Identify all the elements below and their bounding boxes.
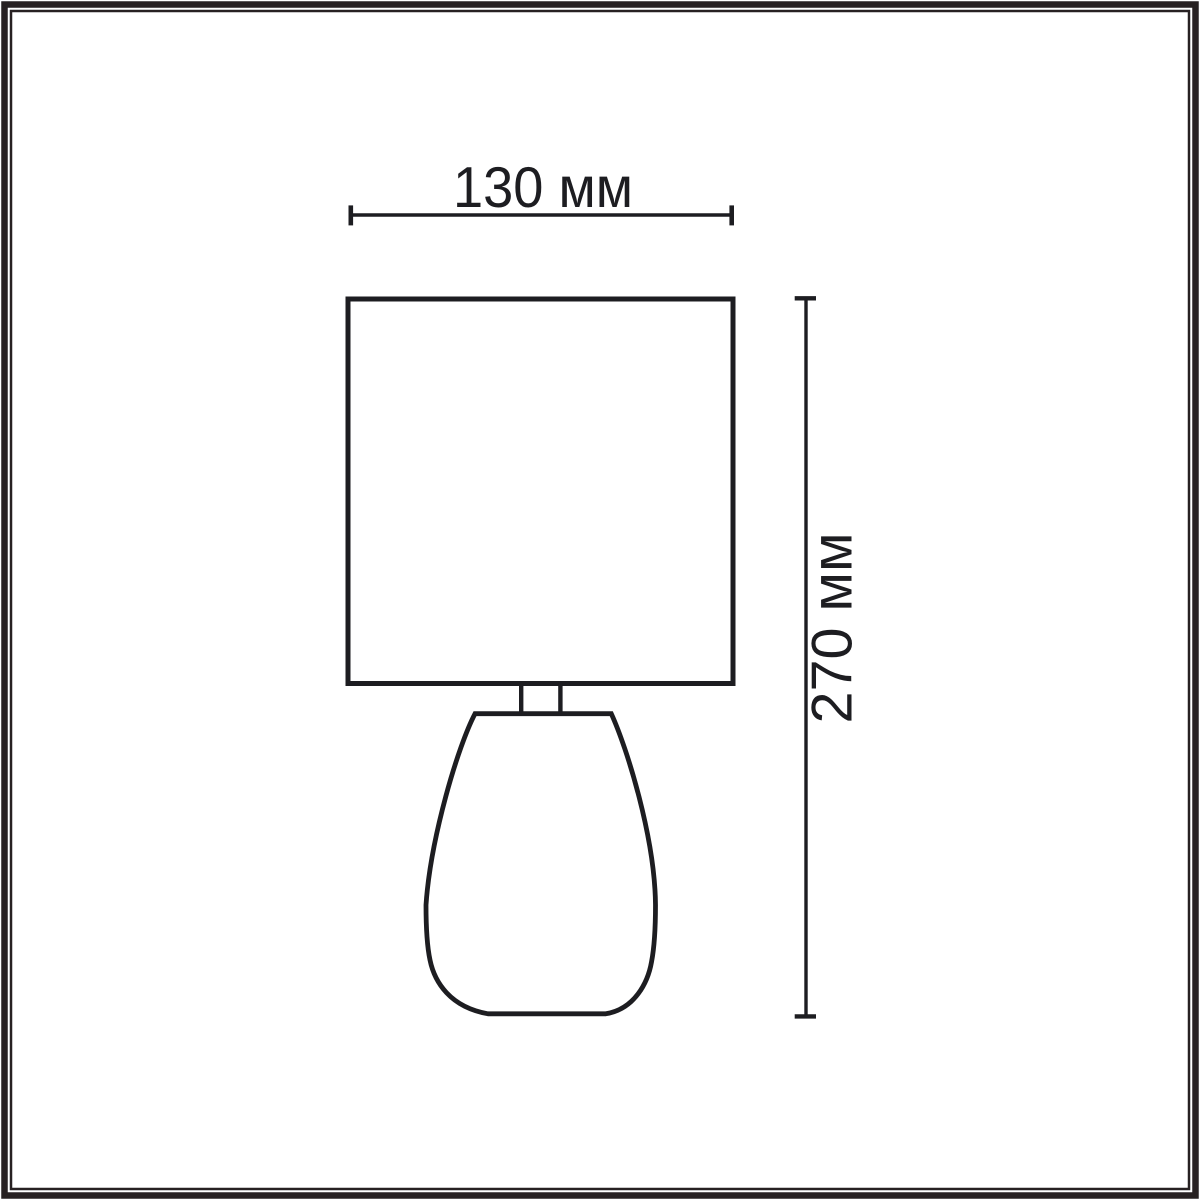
svg-text:130 мм: 130 мм <box>453 156 633 220</box>
svg-text:270 мм: 270 мм <box>801 533 865 724</box>
